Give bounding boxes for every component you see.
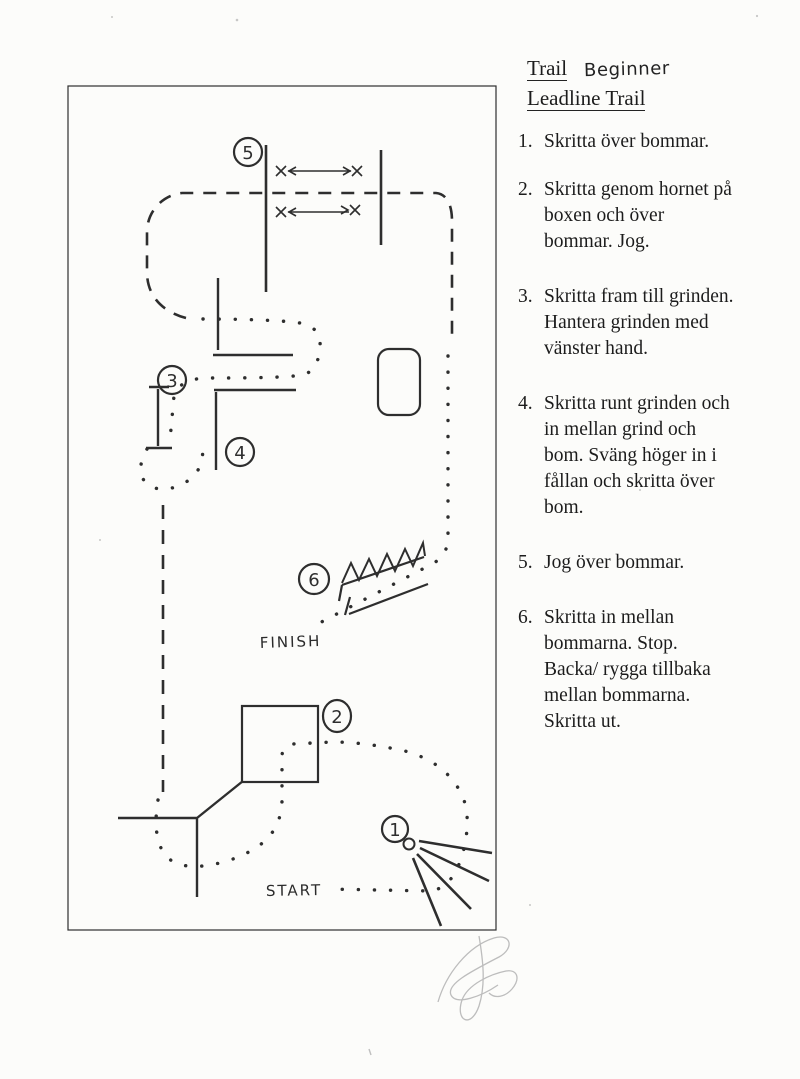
dotted-gate-corridor (170, 319, 320, 440)
course-marker-2: 2 (323, 700, 351, 732)
speckle (99, 539, 101, 541)
title-line: Trail Beginner (527, 56, 786, 83)
instruction-number: 1. (518, 129, 544, 155)
signature (438, 936, 517, 1020)
dotted-turnaround-loop (141, 444, 203, 489)
instruction-text: Skritta genom hornet på boxen och över b… (544, 177, 732, 255)
fan-obstacle (404, 839, 493, 927)
dashed-track-top (147, 193, 452, 338)
instruction-text: Skritta runt grinden och in mellan grind… (544, 391, 730, 521)
subtitle-line: Leadline Trail (527, 86, 786, 113)
marker-number: 5 (242, 143, 253, 164)
arrowheads (289, 167, 350, 216)
instruction-item-5: 5. Jog över bommar. (518, 550, 786, 576)
scanned-trail-sheet: 5 3 4 6 2 1 FINISH START (0, 0, 800, 1079)
instruction-number: 2. (518, 177, 544, 255)
signature-stroke-1 (438, 937, 509, 1002)
instruction-item-3: 3. Skritta fram till grinden. Hantera gr… (518, 284, 786, 362)
x-marks (276, 166, 362, 217)
fan-pivot (404, 839, 415, 850)
speckle (111, 16, 113, 18)
speckle (756, 15, 758, 17)
finish-label: FINISH (260, 632, 322, 652)
zigzag-lower-rail (345, 584, 428, 615)
course-marker-6: 6 (299, 564, 329, 594)
gate-post (146, 387, 172, 448)
instruction-text: Skritta in mellan bommarna. Stop. Backa/… (544, 605, 711, 735)
course-marker-4: 4 (226, 438, 254, 466)
marker-number: 2 (331, 707, 342, 728)
marker-number: 6 (308, 570, 319, 591)
title-block: Trail Beginner Leadline Trail (527, 56, 786, 113)
speckle (236, 19, 239, 22)
course-marker-1: 1 (382, 816, 408, 842)
marker-number: 3 (166, 371, 177, 392)
course-dotted-path (141, 319, 468, 891)
course-subtitle: Leadline Trail (527, 86, 645, 111)
fan-poles (413, 841, 492, 926)
marker-number: 4 (234, 443, 245, 464)
instruction-text: Skritta fram till grinden. Hantera grind… (544, 284, 734, 362)
dotted-start-loop (156, 742, 467, 891)
pole-obstacle-5 (266, 145, 381, 292)
speckle (529, 904, 531, 906)
course-level-handwritten: Beginner (584, 56, 671, 84)
corner-fence (118, 781, 243, 897)
course-title: Trail (527, 56, 567, 81)
instruction-item-1: 1. Skritta över bommar. (518, 129, 786, 155)
instruction-number: 6. (518, 605, 544, 735)
instruction-text: Jog över bommar. (544, 550, 684, 576)
zigzag-teeth (342, 543, 425, 583)
instruction-number: 4. (518, 391, 544, 521)
course-marker-5: 5 (234, 138, 262, 166)
zigzag-obstacle (339, 543, 428, 615)
instruction-text: Skritta över bommar. (544, 129, 709, 155)
instruction-item-2: 2. Skritta genom hornet på boxen och öve… (518, 177, 786, 255)
instruction-item-6: 6. Skritta in mellan bommarna. Stop. Bac… (518, 605, 786, 735)
course-marker-3: 3 (158, 366, 186, 394)
instruction-item-4: 4. Skritta runt grinden och in mellan gr… (518, 391, 786, 521)
speckle-tick (369, 1049, 371, 1055)
square-obstacle (242, 706, 318, 782)
marker-number: 1 (389, 820, 400, 841)
instruction-number: 3. (518, 284, 544, 362)
start-label: START (266, 881, 323, 900)
instruction-number: 5. (518, 550, 544, 576)
box-obstacle (378, 349, 420, 415)
instructions-panel: Trail Beginner Leadline Trail 1. Skritta… (518, 56, 786, 764)
